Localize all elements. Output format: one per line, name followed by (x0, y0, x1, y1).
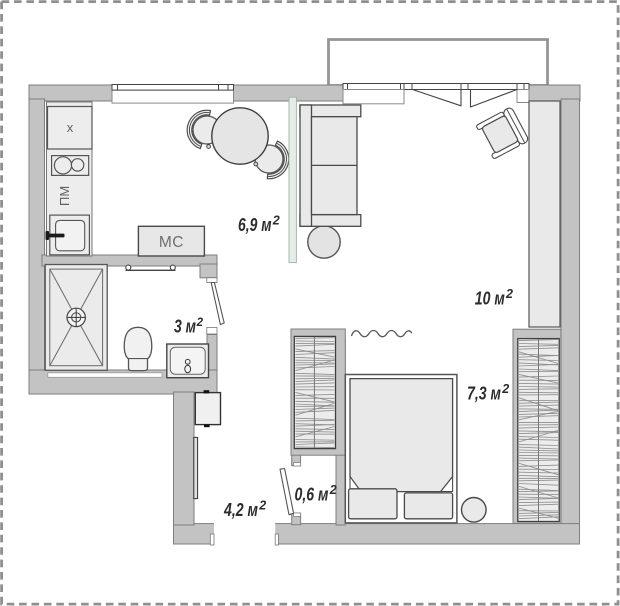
svg-text:2: 2 (501, 382, 509, 396)
svg-text:4,2 м: 4,2 м (223, 499, 258, 520)
svg-text:ПМ: ПМ (57, 186, 72, 206)
svg-text:2: 2 (329, 483, 337, 497)
svg-text:МС: МС (159, 234, 184, 251)
svg-text:7,3 м: 7,3 м (467, 382, 501, 403)
svg-text:х: х (67, 120, 74, 135)
svg-text:2: 2 (258, 499, 266, 513)
svg-text:2: 2 (196, 317, 204, 329)
svg-text:2: 2 (272, 213, 280, 227)
svg-text:2: 2 (505, 287, 513, 301)
svg-text:6,9 м: 6,9 м (238, 214, 272, 235)
svg-text:10 м: 10 м (475, 288, 505, 309)
svg-text:3 м: 3 м (174, 316, 196, 337)
svg-text:0,6 м: 0,6 м (295, 484, 329, 505)
